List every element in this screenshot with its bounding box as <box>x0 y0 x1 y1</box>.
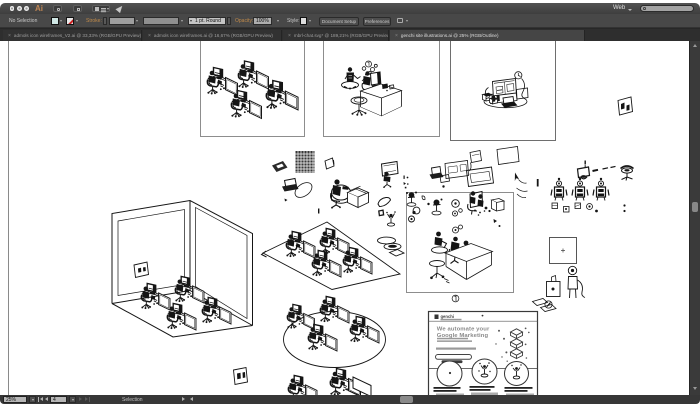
svg-text:We automate your: We automate your <box>437 327 490 333</box>
svg-text:genchi: genchi <box>441 314 455 319</box>
